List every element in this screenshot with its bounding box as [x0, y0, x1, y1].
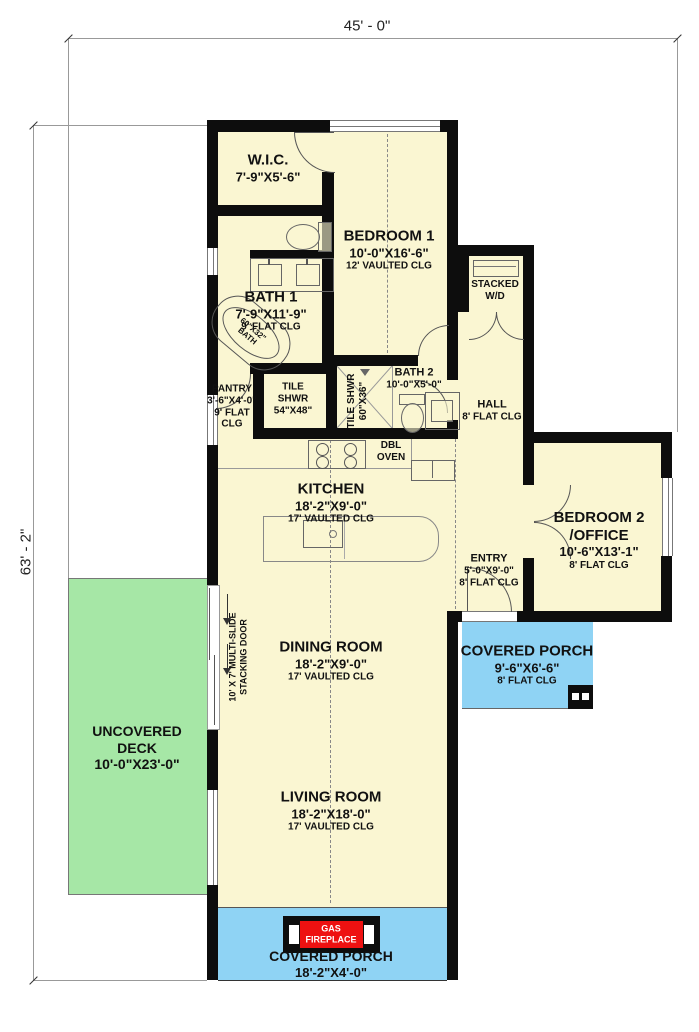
entry-door-opening [462, 611, 517, 622]
wall-segment [207, 363, 216, 374]
wall-segment [326, 366, 337, 428]
wall-segment [207, 885, 218, 980]
toilet-bowl-icon [401, 403, 424, 433]
extension-line [33, 980, 207, 981]
refrigerator [411, 460, 455, 481]
fixture-label-tile-shwr2: TILE SHWR 60"X36" [346, 374, 370, 429]
wall-segment [523, 432, 672, 443]
fireplace-notch [364, 925, 374, 944]
extension-line [68, 38, 69, 578]
width-dimension-label: 45' - 0" [344, 18, 391, 35]
room-label-entry: ENTRY 5'-0"X9'-0" 8' FLAT CLG [459, 553, 518, 590]
room-label-deck: UNCOVERED DECK 10'-0"X23'-0" [82, 723, 192, 773]
window [662, 478, 673, 556]
wall-segment [322, 355, 418, 366]
room-label-bedroom1: BEDROOM 1 10'-0"X16'-6" 12' VAULTED CLG [344, 228, 435, 273]
fixture-label-stacked-wd: STACKED W/D [464, 279, 526, 303]
wall-segment [447, 622, 458, 980]
porch-post-inner [582, 693, 589, 700]
wall-segment [661, 556, 672, 611]
room-label-dining: DINING ROOM 18'-2"X9'-0" 17' VAULTED CLG [279, 639, 382, 684]
vanity-sink [258, 264, 282, 286]
window [330, 120, 440, 132]
room-label-living: LIVING ROOM 18'-2"X18'-0" 17' VAULTED CL… [281, 789, 382, 834]
room-label-covered-porch-bottom: COVERED PORCH 18'-2"X4'-0" [269, 948, 393, 980]
refrigerator-divider [432, 461, 433, 478]
wall-segment [207, 120, 330, 132]
vanity-sink [431, 400, 453, 422]
wall-segment [517, 611, 534, 622]
burner-icon [344, 456, 357, 469]
door-panel-line [214, 655, 215, 725]
room-label-wic: W.I.C. 7'-9"X5'-6" [236, 151, 301, 184]
wall-segment [207, 205, 334, 216]
room-label-hall: HALL 8' FLAT CLG [462, 399, 521, 424]
wall-segment [448, 355, 458, 366]
toilet-bowl-icon [286, 224, 320, 250]
wall-segment [523, 558, 534, 611]
height-dimension-label: 63' - 2" [18, 529, 35, 576]
room-label-kitchen: KITCHEN 18'-2"X9'-0" 17' VAULTED CLG [288, 481, 374, 526]
wall-segment [523, 611, 672, 622]
window [207, 248, 218, 275]
washer-dryer-icon [473, 260, 519, 277]
wall-segment [447, 245, 534, 256]
door-panel-line [209, 588, 210, 660]
room-label-bath2: BATH 2 10'-0"X5'-0" [386, 367, 441, 392]
door-leaf [294, 132, 334, 133]
wall-segment [447, 366, 458, 380]
dimension-line-top [68, 38, 677, 39]
wall-segment [207, 445, 218, 585]
burner-icon [344, 443, 357, 456]
wall-segment [207, 728, 218, 790]
wall-segment [447, 611, 462, 622]
room-label-pantry: PANTRY 3'-6"X4'-0" 9' FLAT CLG [207, 383, 257, 430]
extension-line [677, 38, 678, 432]
fireplace-notch [289, 925, 299, 944]
wall-segment [207, 132, 218, 248]
vanity-sink [296, 264, 320, 286]
faucet-icon [306, 259, 308, 265]
wall-segment [322, 172, 334, 205]
window [207, 790, 218, 885]
gas-fireplace-label: GAS FIREPLACE [305, 923, 356, 944]
washer-dryer-line [474, 266, 516, 267]
faucet-icon [268, 259, 270, 265]
label-multislide-door: 10' X 7' MULTI-SLIDE STACKING DOOR [227, 612, 248, 701]
burner-icon [316, 456, 329, 469]
burner-icon [316, 443, 329, 456]
fixture-label-dbl-oven: DBL OVEN [373, 440, 409, 464]
porch-post-inner [572, 693, 579, 700]
room-label-bedroom2: BEDROOM 2 /OFFICE 10'-6"X13'-1" 8' FLAT … [554, 509, 645, 572]
sink-drain-icon [329, 530, 337, 538]
toilet-tank [318, 222, 332, 252]
fixture-label-tile-shwr: TILE SHWR 54"X48" [269, 381, 317, 416]
wall-segment [661, 443, 672, 478]
room-label-covered-porch-right: COVERED PORCH 9'-6"X6'-6" 8' FLAT CLG [461, 643, 594, 688]
floor-plan: 45' - 0" 63' - 2" [0, 0, 699, 1032]
extension-line [33, 125, 207, 126]
wall-segment [523, 443, 534, 485]
hall-boundary-line [455, 439, 456, 609]
